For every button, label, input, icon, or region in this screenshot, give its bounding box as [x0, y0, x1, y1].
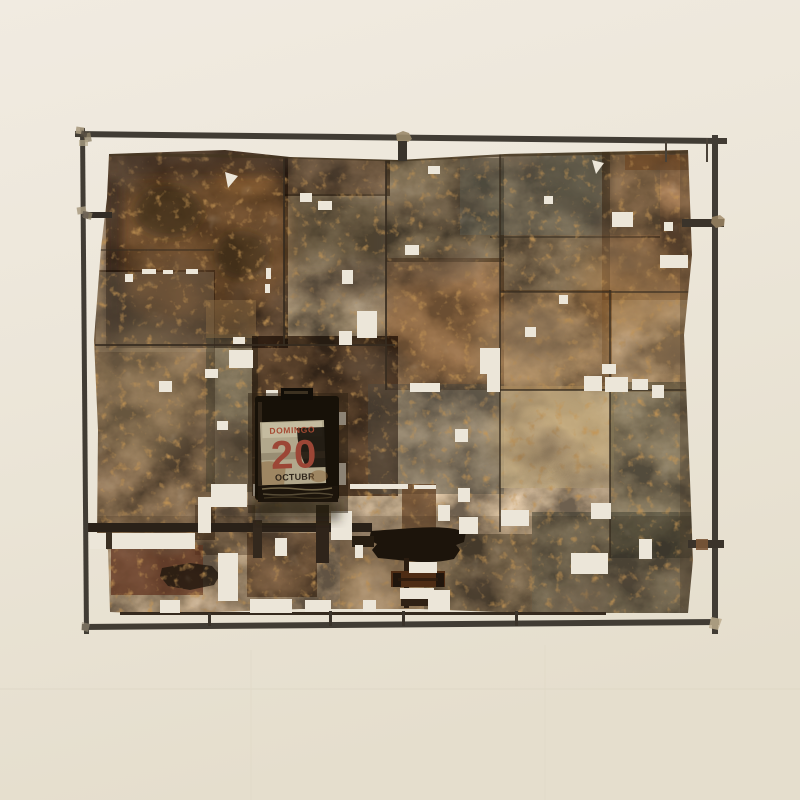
svg-text:OCTUBR: OCTUBR — [275, 471, 315, 482]
